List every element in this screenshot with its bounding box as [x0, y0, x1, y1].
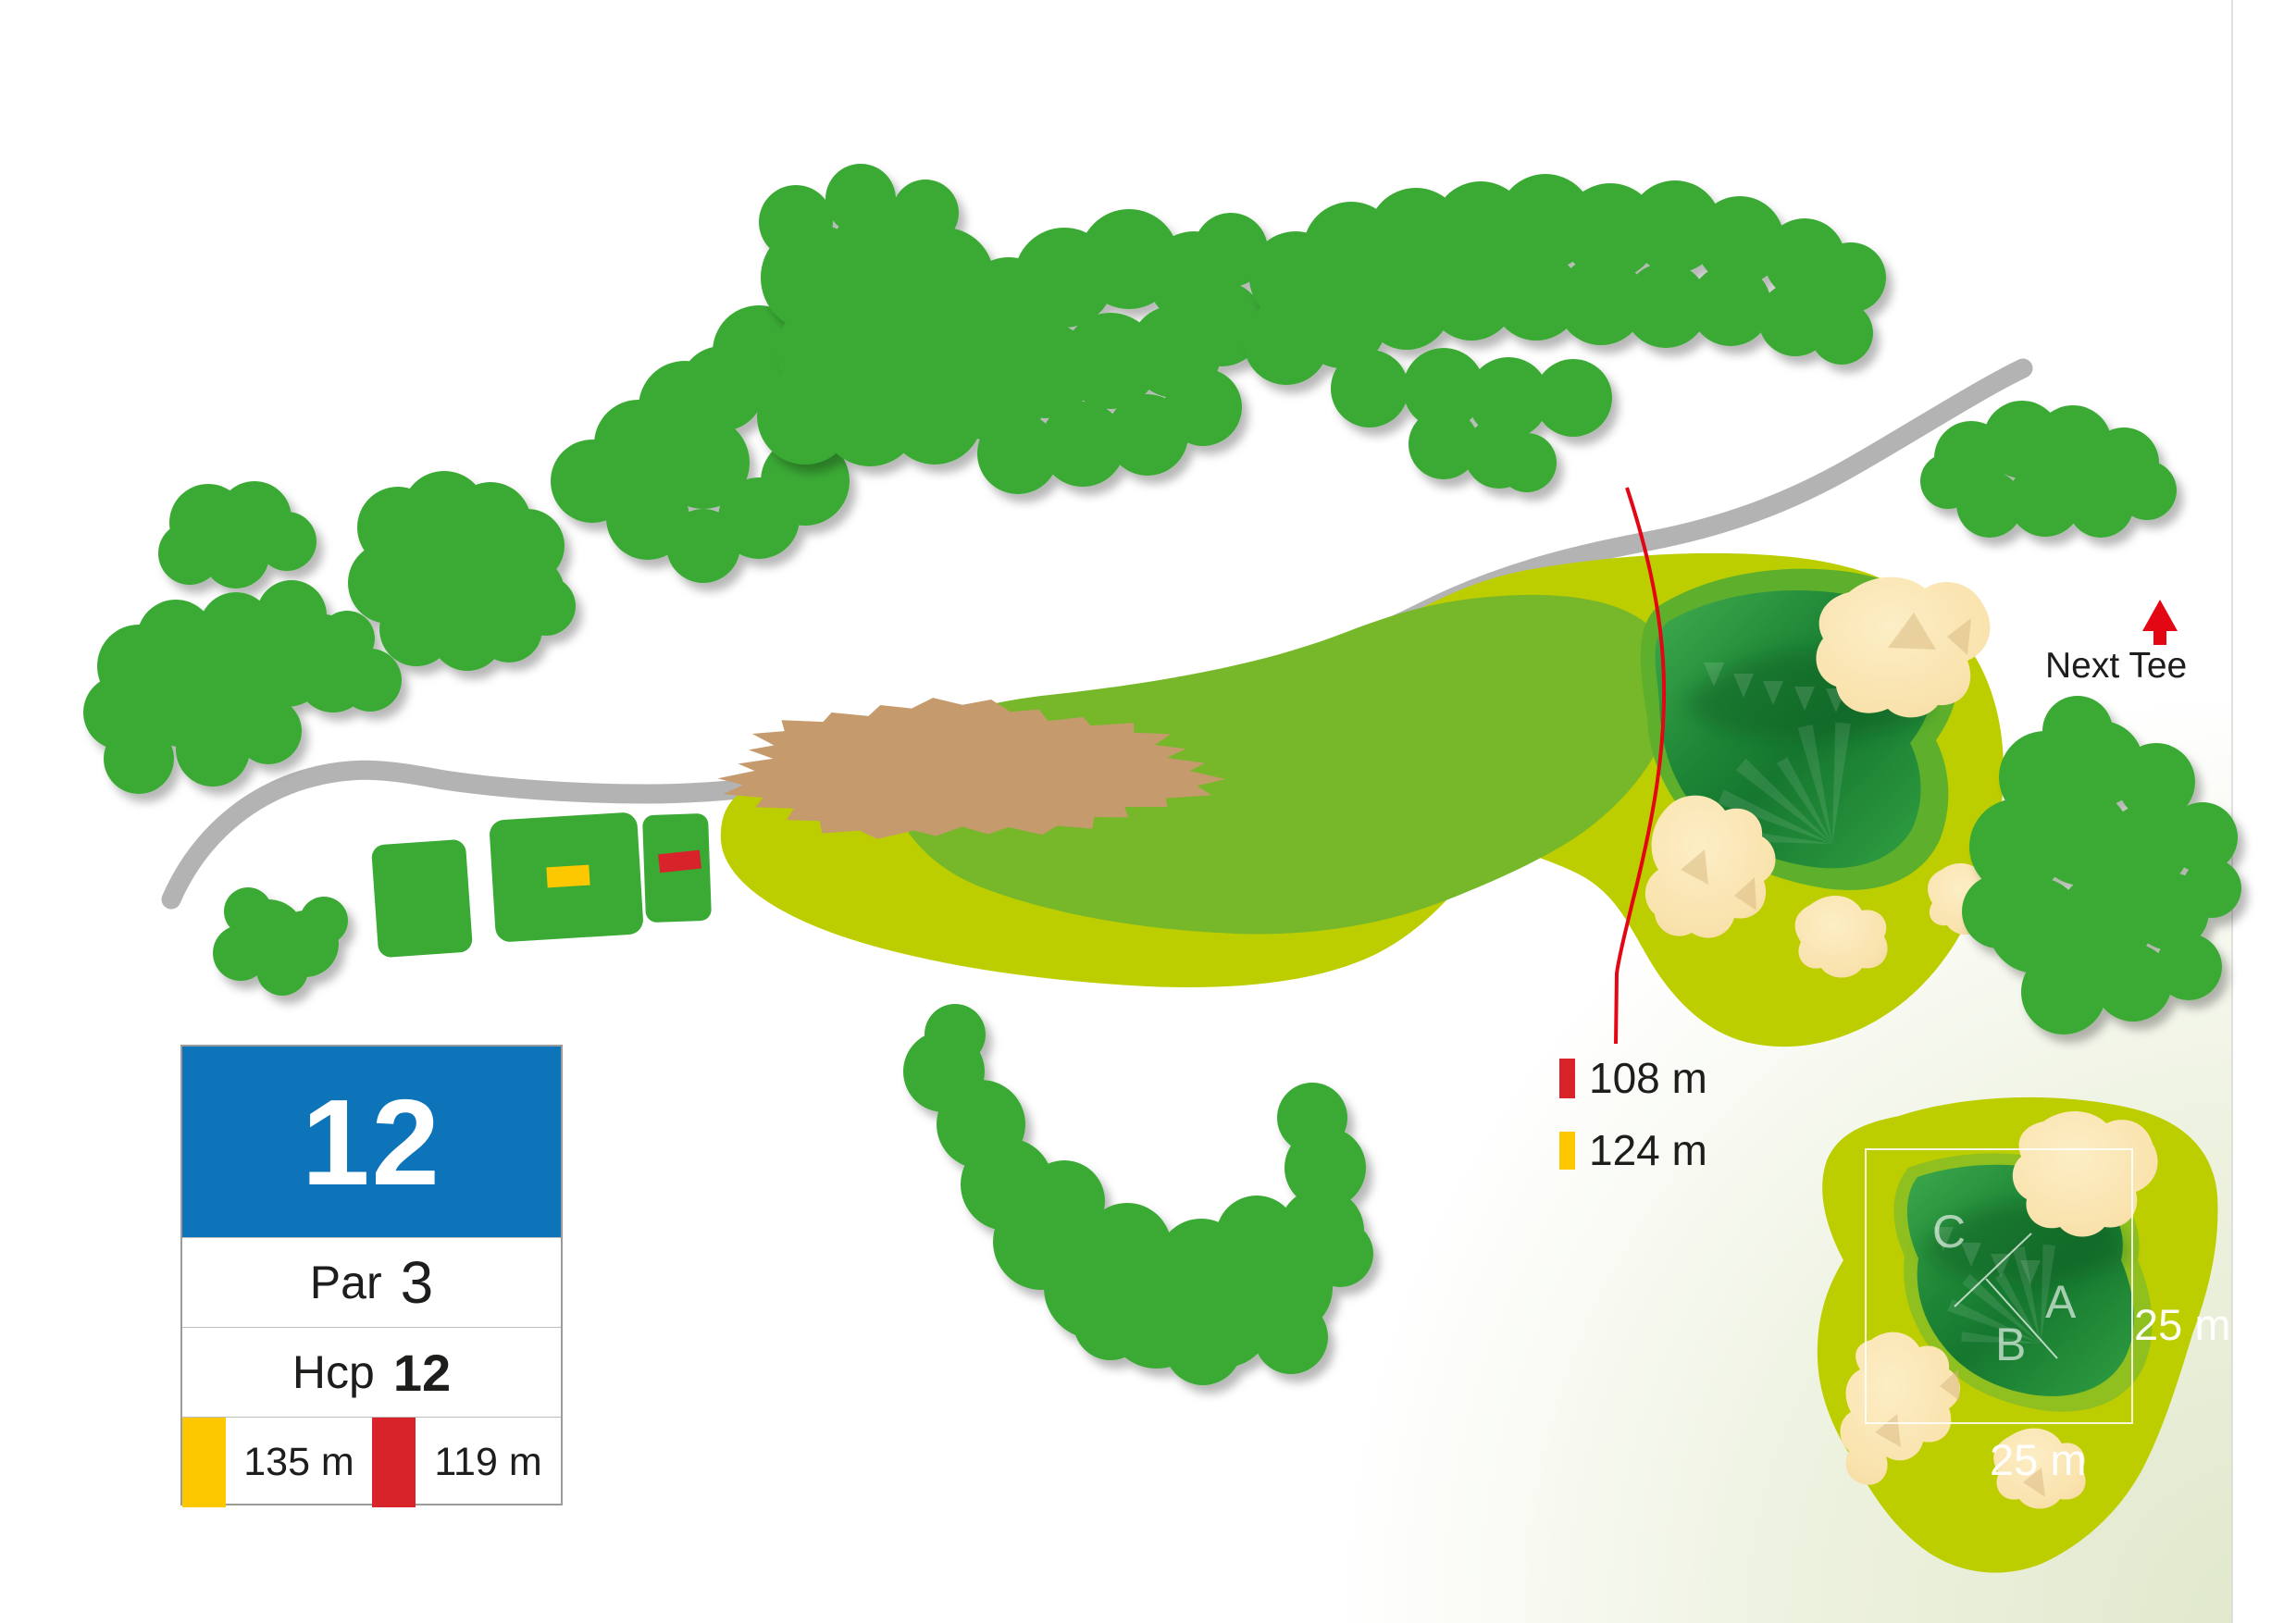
tee-box	[371, 839, 473, 959]
pin-position-a: A	[2045, 1275, 2076, 1329]
yellow-tee-distance: 135 m	[226, 1418, 372, 1507]
yellow-marker-legend: 124 m	[1559, 1125, 1707, 1175]
red-tee-distance: 119 m	[416, 1418, 561, 1507]
canopy-main	[757, 164, 1268, 494]
par-value: 3	[401, 1248, 434, 1317]
green-width-label: 25 m	[2134, 1299, 2231, 1350]
par-row: Par 3	[182, 1237, 561, 1327]
hcp-label: Hcp	[292, 1345, 375, 1399]
par-label: Par	[310, 1256, 382, 1309]
pin-position-b: B	[1995, 1318, 2026, 1371]
red-marker-distance: 108 m	[1589, 1053, 1707, 1103]
green-depth-label: 25 m	[1990, 1434, 2087, 1485]
yellow-tee-swatch	[182, 1418, 226, 1507]
next-tee-cluster	[1920, 401, 2177, 538]
yellow-marker-swatch	[1559, 1132, 1575, 1170]
next-tee-arrow-icon	[2141, 600, 2178, 646]
pin-position-c: C	[1932, 1205, 1966, 1258]
next-tee-label: Next Tee	[2045, 646, 2187, 687]
yellow-marker-distance: 124 m	[1589, 1125, 1707, 1175]
forest-west	[83, 305, 850, 794]
tee-side-tree	[213, 887, 348, 996]
hcp-value: 12	[393, 1343, 451, 1403]
canopy-east	[1244, 174, 1886, 492]
red-tee-swatch	[372, 1418, 416, 1507]
hole-number-header: 12	[182, 1047, 561, 1237]
tee-distances-row: 135 m 119 m	[182, 1417, 561, 1507]
tee-boxes	[371, 811, 712, 958]
hole-info-card: 12 Par 3 Hcp 12 135 m 119 m	[180, 1045, 563, 1505]
hole-number: 12	[302, 1072, 441, 1212]
hcp-row: Hcp 12	[182, 1327, 561, 1417]
red-marker-legend: 108 m	[1559, 1053, 1707, 1103]
red-marker-swatch	[1559, 1059, 1575, 1098]
golf-hole-map: 12 Par 3 Hcp 12 135 m 119 m 108 m 124 m …	[0, 0, 2296, 1623]
yellow-tee-marker	[546, 865, 590, 888]
